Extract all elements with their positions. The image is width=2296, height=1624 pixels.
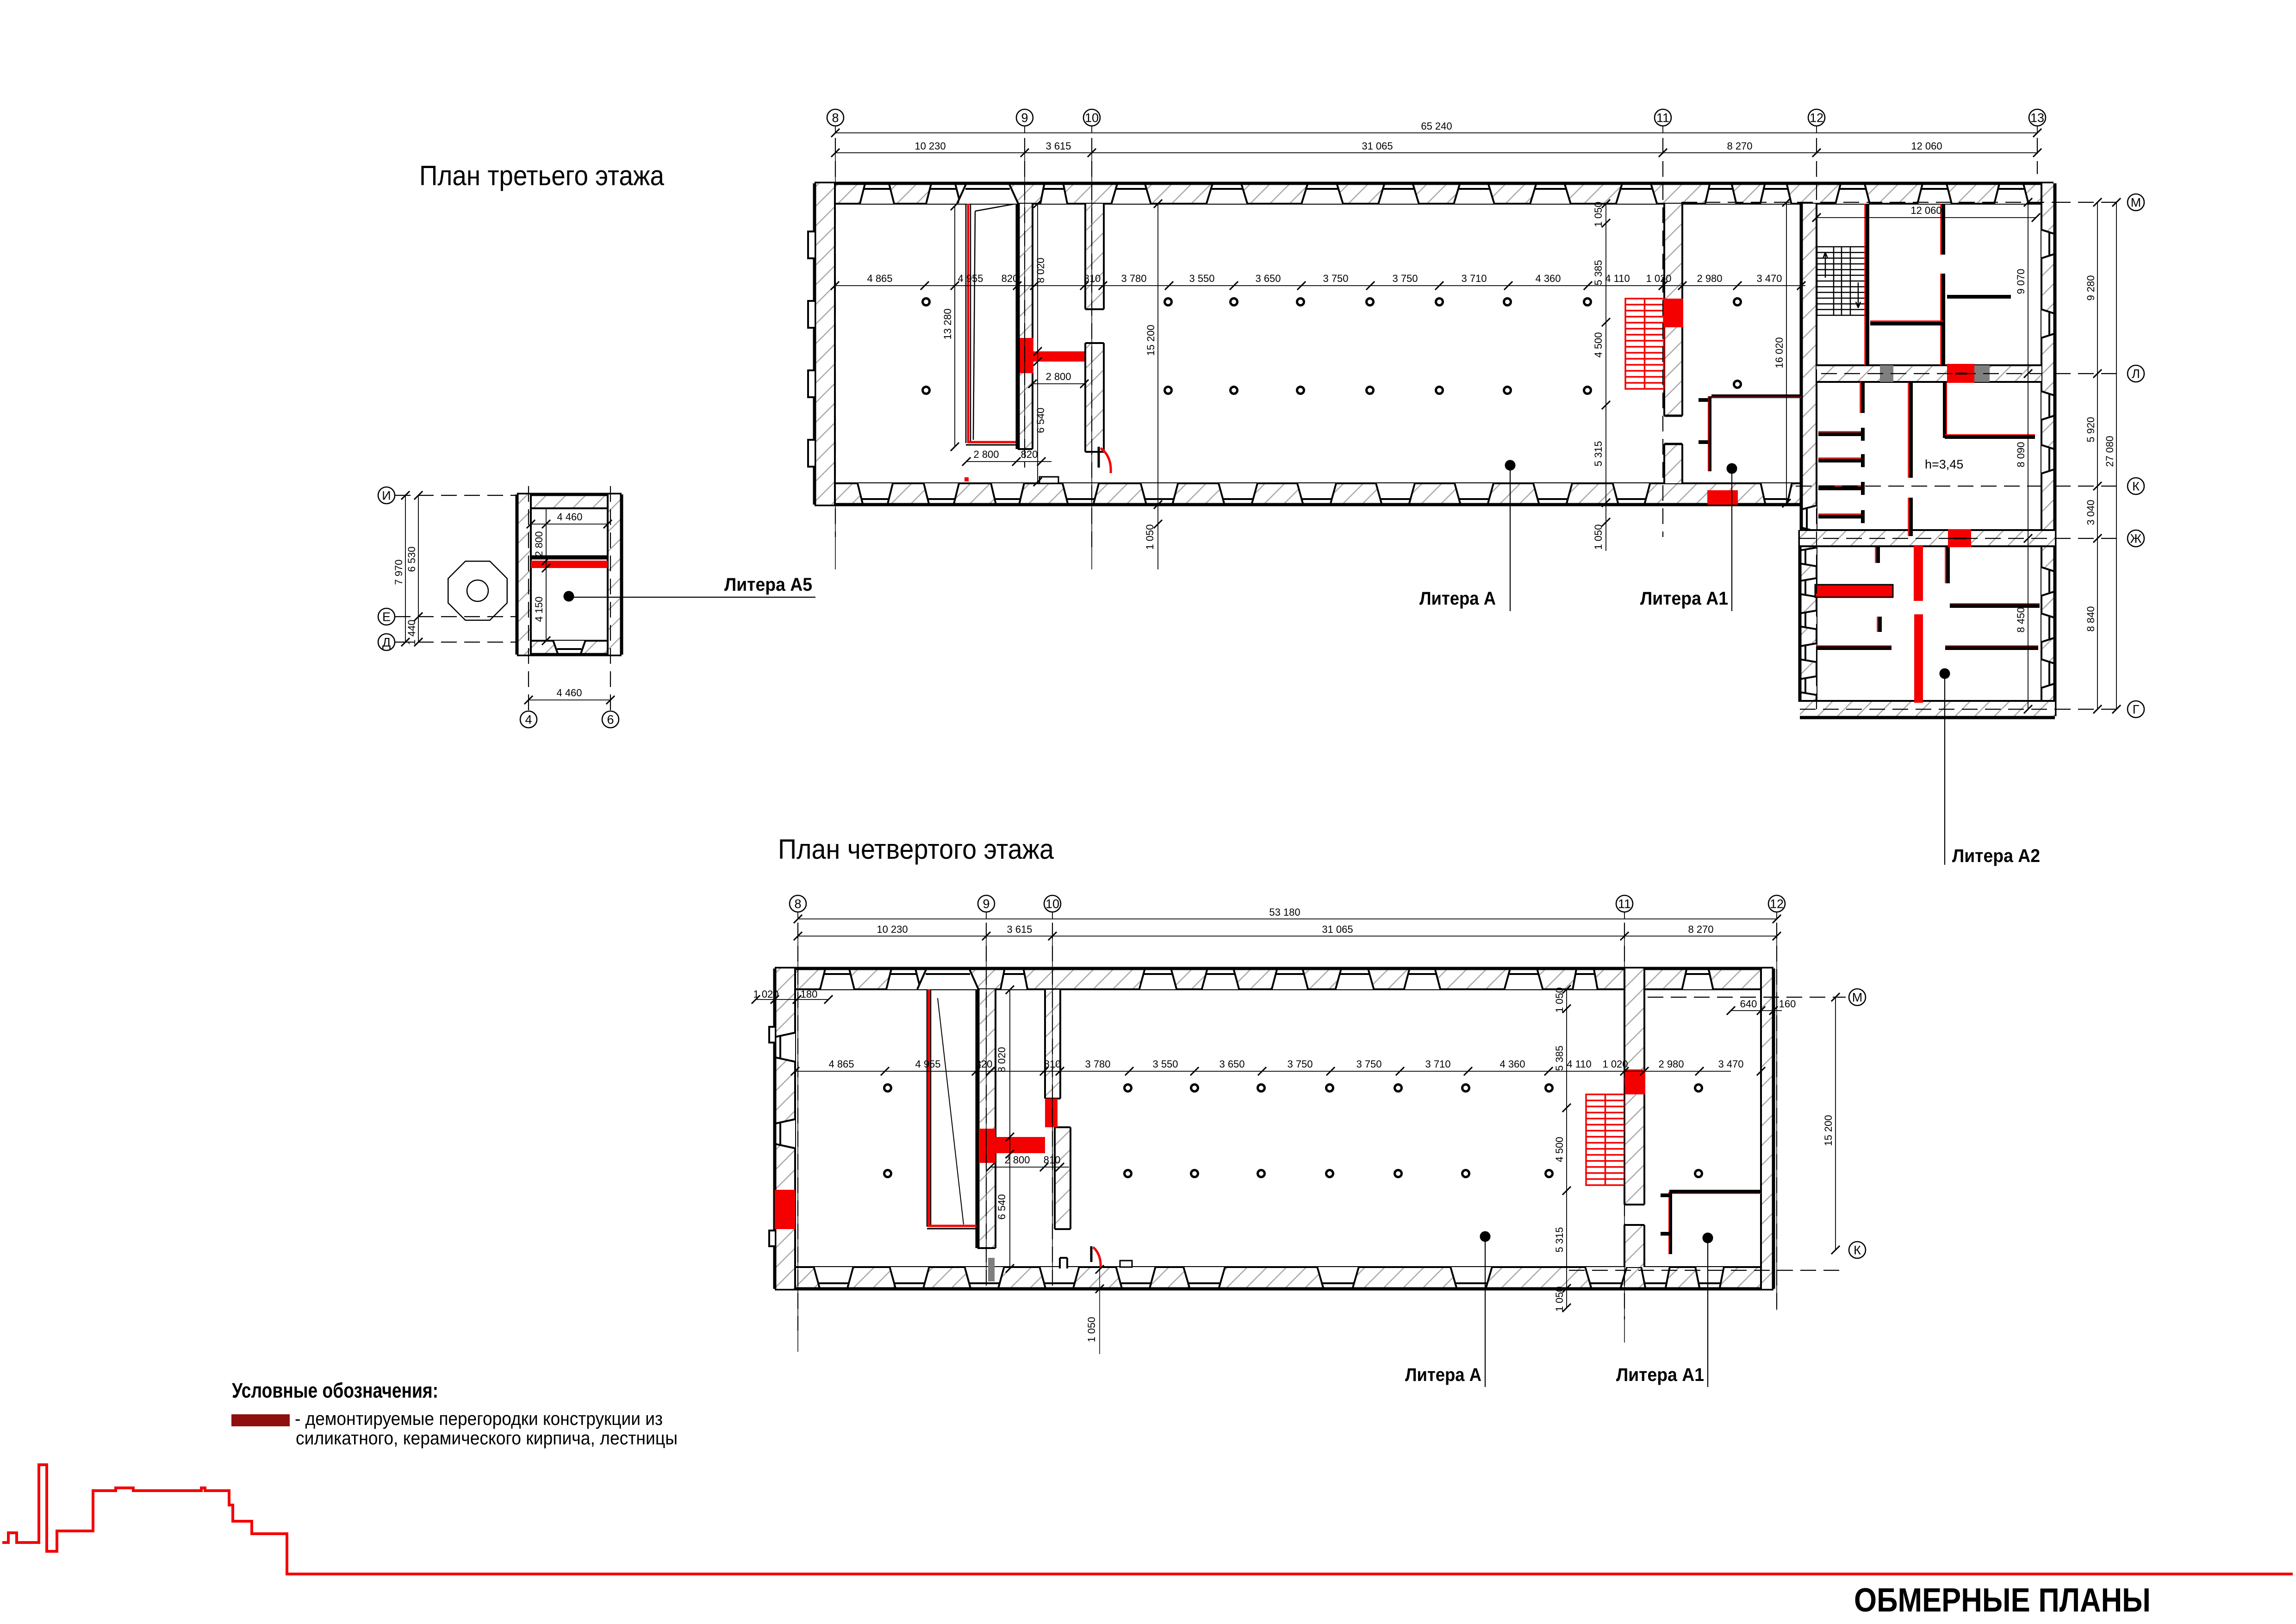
svg-text:10: 10 bbox=[1085, 111, 1099, 125]
svg-text:3 780: 3 780 bbox=[1085, 1058, 1110, 1070]
svg-text:6 540: 6 540 bbox=[1035, 407, 1046, 433]
svg-text:8 270: 8 270 bbox=[1688, 924, 1713, 935]
svg-text:3 040: 3 040 bbox=[2085, 500, 2097, 525]
svg-text:4 460: 4 460 bbox=[557, 511, 582, 523]
svg-text:2 800: 2 800 bbox=[1045, 371, 1071, 382]
svg-text:5 385: 5 385 bbox=[1593, 260, 1604, 285]
svg-text:9 070: 9 070 bbox=[2015, 269, 2027, 294]
svg-text:4 500: 4 500 bbox=[1554, 1137, 1565, 1162]
svg-text:9 280: 9 280 bbox=[2085, 275, 2097, 300]
svg-text:Л: Л bbox=[2132, 367, 2140, 381]
svg-text:5 315: 5 315 bbox=[1593, 441, 1604, 466]
svg-text:М: М bbox=[1852, 991, 1863, 1005]
svg-text:6 530: 6 530 bbox=[406, 546, 417, 572]
svg-text:810: 810 bbox=[1084, 273, 1101, 284]
svg-text:53 180: 53 180 bbox=[1269, 906, 1300, 918]
svg-text:Литера А: Литера А bbox=[1405, 1365, 1481, 1385]
svg-text:8 090: 8 090 bbox=[2015, 442, 2027, 467]
svg-text:1 050: 1 050 bbox=[1593, 201, 1604, 227]
svg-text:820: 820 bbox=[1021, 449, 1038, 460]
svg-text:5 385: 5 385 bbox=[1554, 1045, 1565, 1071]
svg-text:4 865: 4 865 bbox=[828, 1058, 854, 1070]
svg-text:1 050: 1 050 bbox=[1593, 524, 1604, 550]
svg-text:Литера А2: Литера А2 bbox=[1952, 846, 2040, 866]
svg-text:4 110: 4 110 bbox=[1567, 1058, 1591, 1070]
svg-text:4 500: 4 500 bbox=[1593, 332, 1604, 357]
svg-text:3 470: 3 470 bbox=[1718, 1058, 1743, 1070]
svg-text:План четвертого этажа: План четвертого этажа bbox=[778, 834, 1054, 865]
svg-text:8 840: 8 840 bbox=[2085, 606, 2097, 631]
svg-text:Литера А1: Литера А1 bbox=[1640, 588, 1728, 609]
svg-text:3 750: 3 750 bbox=[1287, 1058, 1313, 1070]
svg-text:3 550: 3 550 bbox=[1189, 273, 1214, 284]
svg-text:Литера А1: Литера А1 bbox=[1616, 1365, 1704, 1385]
svg-text:5 315: 5 315 bbox=[1554, 1227, 1565, 1252]
svg-text:9: 9 bbox=[1021, 111, 1028, 125]
svg-text:М: М bbox=[2131, 196, 2141, 210]
svg-text:Д: Д bbox=[382, 636, 391, 650]
svg-text:8: 8 bbox=[794, 897, 801, 911]
svg-text:1 050: 1 050 bbox=[1554, 987, 1565, 1012]
svg-text:180: 180 bbox=[801, 988, 818, 1000]
svg-text:3 750: 3 750 bbox=[1356, 1058, 1381, 1070]
svg-text:160: 160 bbox=[1779, 998, 1796, 1010]
svg-text:1 020: 1 020 bbox=[1646, 273, 1671, 284]
svg-text:810: 810 bbox=[1044, 1058, 1061, 1070]
svg-text:3 710: 3 710 bbox=[1461, 273, 1487, 284]
svg-text:820: 820 bbox=[976, 1058, 993, 1070]
svg-text:12 060: 12 060 bbox=[1910, 205, 1941, 216]
svg-text:810: 810 bbox=[1044, 1154, 1061, 1166]
svg-text:1 020: 1 020 bbox=[753, 988, 778, 1000]
svg-text:4 955: 4 955 bbox=[958, 273, 983, 284]
svg-text:1 050: 1 050 bbox=[1086, 1317, 1097, 1342]
svg-text:8 020: 8 020 bbox=[996, 1047, 1008, 1072]
svg-text:12: 12 bbox=[1810, 111, 1823, 125]
svg-text:640: 640 bbox=[1740, 998, 1757, 1010]
svg-text:16 020: 16 020 bbox=[1773, 337, 1785, 368]
svg-text:27 080: 27 080 bbox=[2104, 436, 2116, 467]
svg-text:2 800: 2 800 bbox=[973, 449, 999, 460]
svg-text:12 060: 12 060 bbox=[1911, 140, 1942, 152]
svg-text:силикатного, керамического кир: силикатного, керамического кирпича, лест… bbox=[296, 1428, 678, 1449]
svg-text:4 955: 4 955 bbox=[915, 1058, 940, 1070]
svg-text:1 050: 1 050 bbox=[1554, 1286, 1565, 1312]
svg-text:3 650: 3 650 bbox=[1255, 273, 1281, 284]
svg-text:2 800: 2 800 bbox=[1004, 1154, 1030, 1166]
svg-text:11: 11 bbox=[1618, 897, 1631, 911]
svg-text:10: 10 bbox=[1045, 897, 1059, 911]
svg-text:1 440: 1 440 bbox=[406, 619, 417, 645]
svg-text:5 920: 5 920 bbox=[2085, 417, 2097, 442]
svg-text:Литера А5: Литера А5 bbox=[724, 575, 812, 595]
svg-text:6 540: 6 540 bbox=[996, 1194, 1008, 1219]
svg-text:Литера А: Литера А bbox=[1419, 588, 1496, 609]
svg-text:3 710: 3 710 bbox=[1425, 1058, 1450, 1070]
svg-text:8 270: 8 270 bbox=[1727, 140, 1752, 152]
svg-text:3 550: 3 550 bbox=[1152, 1058, 1178, 1070]
svg-text:4 150: 4 150 bbox=[533, 596, 545, 622]
svg-text:13 280: 13 280 bbox=[942, 308, 953, 339]
svg-text:12: 12 bbox=[1770, 897, 1784, 911]
svg-text:2 980: 2 980 bbox=[1658, 1058, 1684, 1070]
svg-text:3 615: 3 615 bbox=[1045, 140, 1071, 152]
svg-text:15 200: 15 200 bbox=[1145, 325, 1157, 356]
svg-text:И: И bbox=[382, 489, 391, 503]
svg-text:4 360: 4 360 bbox=[1500, 1058, 1525, 1070]
svg-text:10 230: 10 230 bbox=[877, 924, 908, 935]
svg-text:8: 8 bbox=[832, 111, 839, 125]
svg-text:Ж: Ж bbox=[2130, 532, 2142, 546]
svg-text:Е: Е bbox=[382, 610, 391, 624]
svg-text:2 800: 2 800 bbox=[533, 531, 545, 556]
svg-text:1 050: 1 050 bbox=[1144, 524, 1156, 550]
svg-text:- демонтируемые перегородки ко: - демонтируемые перегородки конструкции … bbox=[295, 1409, 663, 1429]
svg-text:h=3,45: h=3,45 bbox=[1925, 457, 1963, 471]
svg-text:7 970: 7 970 bbox=[393, 559, 404, 585]
svg-text:820: 820 bbox=[1002, 273, 1019, 284]
svg-text:4 460: 4 460 bbox=[556, 687, 582, 699]
svg-text:10 230: 10 230 bbox=[915, 140, 946, 152]
svg-text:15 200: 15 200 bbox=[1823, 1115, 1834, 1146]
svg-text:3 615: 3 615 bbox=[1007, 924, 1032, 935]
svg-text:План третьего этажа: План третьего этажа bbox=[419, 160, 665, 191]
svg-text:9: 9 bbox=[983, 897, 989, 911]
svg-text:3 780: 3 780 bbox=[1121, 273, 1146, 284]
svg-text:3 650: 3 650 bbox=[1219, 1058, 1244, 1070]
svg-text:4 360: 4 360 bbox=[1535, 273, 1561, 284]
svg-text:4 865: 4 865 bbox=[867, 273, 892, 284]
svg-text:31 065: 31 065 bbox=[1362, 140, 1393, 152]
svg-text:2 980: 2 980 bbox=[1697, 273, 1722, 284]
svg-text:13: 13 bbox=[2030, 111, 2044, 125]
svg-text:К: К bbox=[2132, 480, 2140, 493]
svg-text:3 470: 3 470 bbox=[1756, 273, 1782, 284]
svg-text:8 450: 8 450 bbox=[2015, 607, 2027, 632]
svg-text:4: 4 bbox=[525, 713, 532, 727]
svg-text:11: 11 bbox=[1656, 111, 1669, 125]
svg-text:Условные обозначения:: Условные обозначения: bbox=[232, 1379, 438, 1402]
svg-text:Г: Г bbox=[2133, 703, 2140, 717]
svg-text:3 750: 3 750 bbox=[1392, 273, 1418, 284]
svg-text:4 110: 4 110 bbox=[1605, 273, 1630, 284]
svg-text:ОБМЕРНЫЕ ПЛАНЫ: ОБМЕРНЫЕ ПЛАНЫ bbox=[1854, 1582, 2151, 1619]
svg-text:6: 6 bbox=[607, 713, 614, 727]
svg-text:1 020: 1 020 bbox=[1602, 1058, 1628, 1070]
svg-text:8 020: 8 020 bbox=[1035, 257, 1046, 283]
svg-text:3 750: 3 750 bbox=[1323, 273, 1348, 284]
svg-text:65 240: 65 240 bbox=[1421, 120, 1452, 132]
svg-text:31 065: 31 065 bbox=[1322, 924, 1353, 935]
svg-text:К: К bbox=[1854, 1243, 1861, 1257]
